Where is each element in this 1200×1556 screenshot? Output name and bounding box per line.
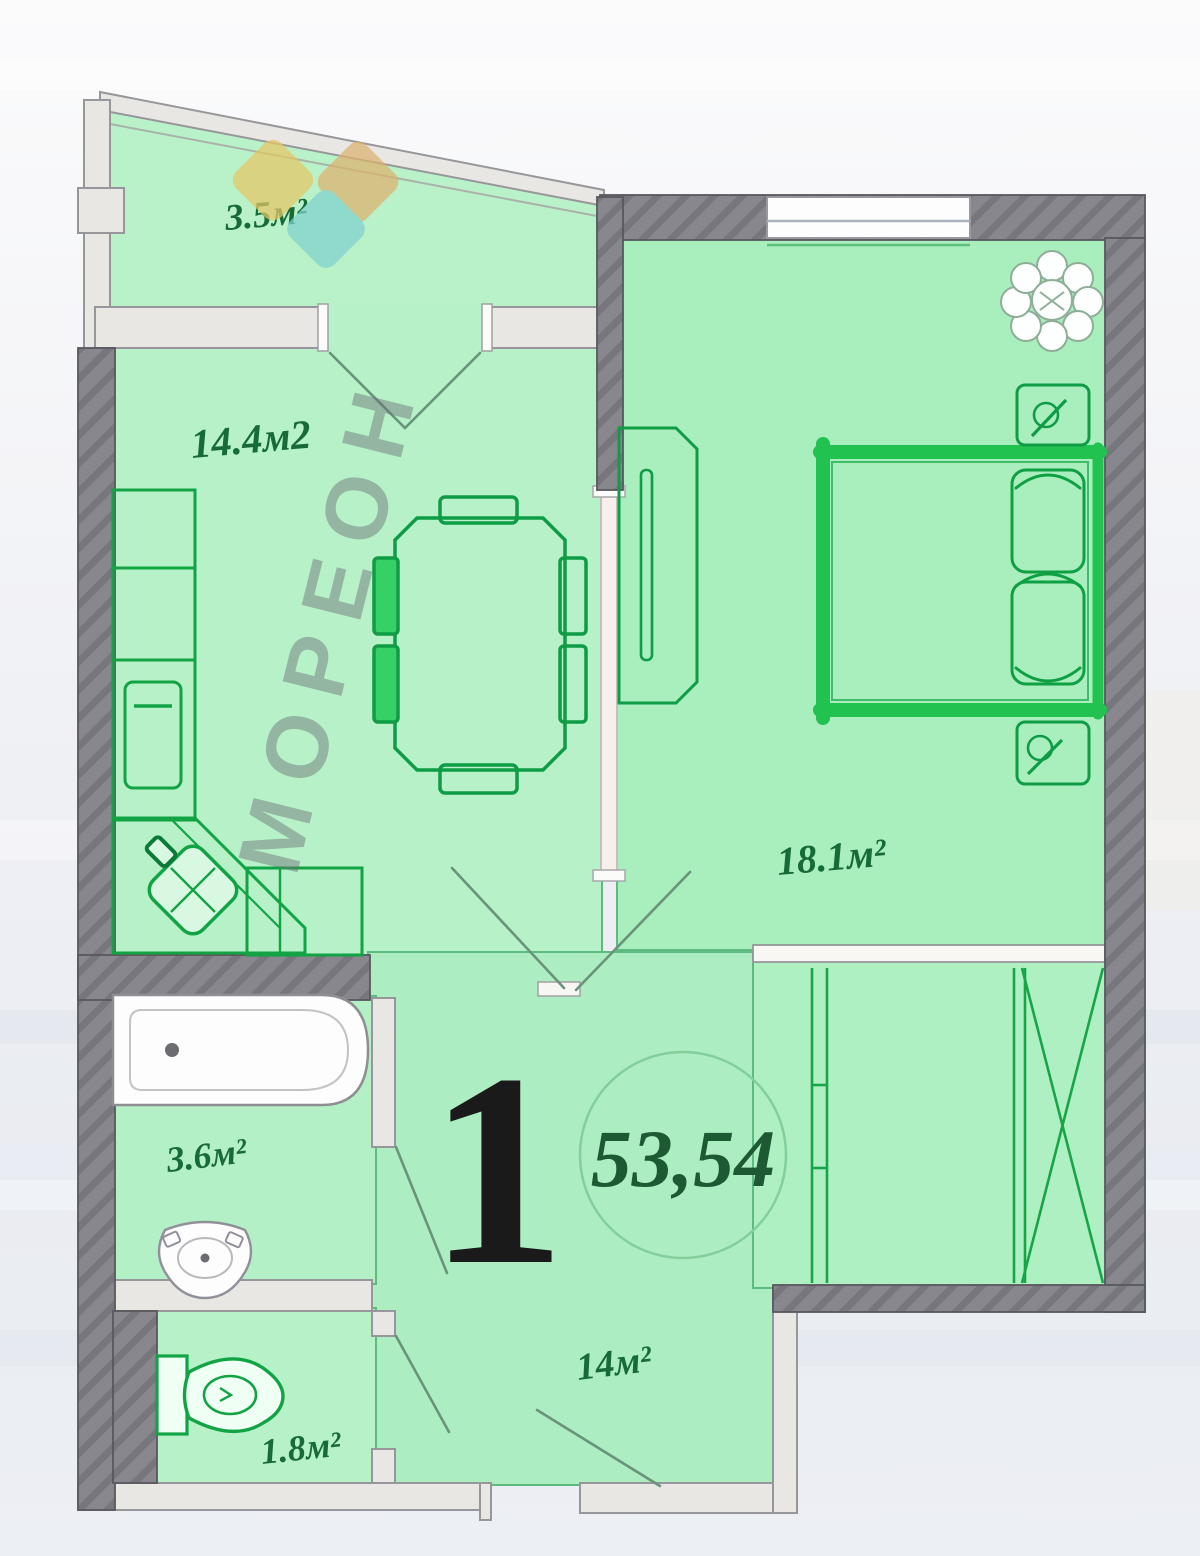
room-label-wc: 1.8м² bbox=[259, 1424, 344, 1472]
wardrobe-bottom-wall bbox=[773, 1285, 1145, 1312]
chair-icon bbox=[374, 646, 398, 722]
toilet-icon bbox=[157, 1356, 283, 1434]
total-area: 53,54 bbox=[591, 1113, 776, 1204]
balcony-wall-notch bbox=[78, 188, 124, 233]
balcony-door-opening bbox=[323, 303, 487, 352]
kitchen-bathroom-wall bbox=[78, 955, 370, 1000]
bottom-wall-left bbox=[78, 1483, 490, 1510]
toilet-bowl bbox=[185, 1359, 284, 1431]
floor-plan-svg: 3.5м² 14.4м2 18.1м² 3.6м² 1.8м² 14м² 1 5… bbox=[0, 0, 1200, 1556]
room-label-bedroom: 18.1м² bbox=[775, 830, 889, 884]
hallway-right-wall bbox=[773, 1287, 797, 1513]
room-wardrobe-niche bbox=[753, 952, 1107, 1288]
bedroom-wardrobe-partition bbox=[753, 945, 1105, 962]
wc-right-jamb-top bbox=[372, 1311, 395, 1336]
floor-plan-image: 3.5м² 14.4м2 18.1м² 3.6м² 1.8м² 14м² 1 5… bbox=[0, 0, 1200, 1556]
bedroom-door-leaf bbox=[601, 492, 617, 874]
balcony-door-jamb-right bbox=[482, 304, 492, 351]
bottom-wall-right bbox=[580, 1483, 797, 1513]
plant-icon bbox=[1001, 251, 1103, 351]
bathroom-right-wall bbox=[372, 998, 395, 1147]
right-exterior-wall bbox=[1105, 238, 1145, 1312]
wc-right-jamb-bottom bbox=[372, 1449, 395, 1484]
bathtub-drain bbox=[165, 1043, 179, 1057]
balcony-door-jamb-left bbox=[318, 304, 328, 351]
bathtub-icon bbox=[113, 995, 368, 1105]
toilet-tank bbox=[157, 1356, 187, 1434]
apartment-number: 1 bbox=[428, 1018, 566, 1322]
bedroom-door-cap-bottom bbox=[593, 870, 625, 881]
bottom-wall-step bbox=[480, 1483, 491, 1520]
bedroom-window bbox=[767, 197, 970, 245]
wc-shaft-wall bbox=[113, 1311, 157, 1483]
left-exterior-wall bbox=[78, 348, 115, 1510]
